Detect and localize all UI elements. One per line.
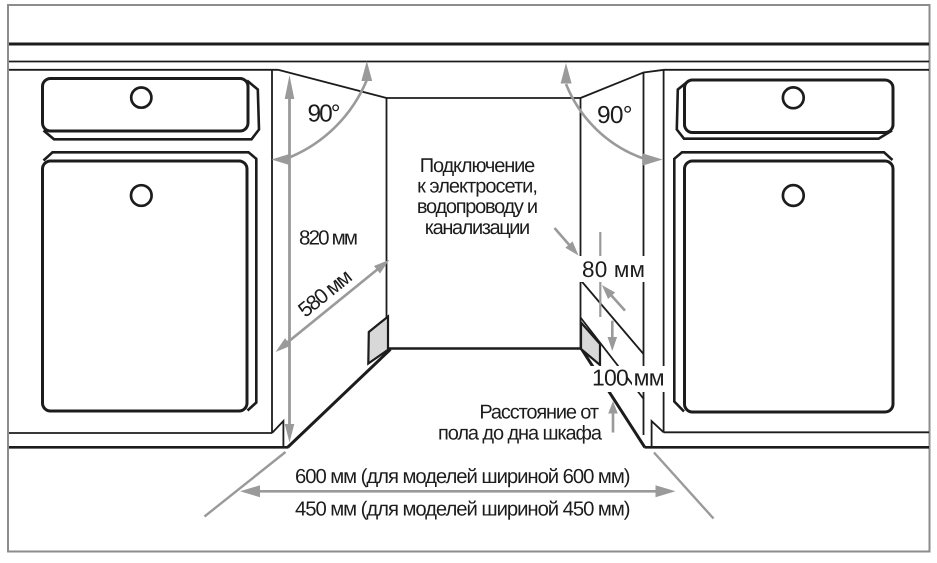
svg-text:820 мм: 820 мм bbox=[299, 227, 358, 250]
svg-text:100 мм: 100 мм bbox=[592, 365, 665, 391]
svg-text:Расстояние от: Расстояние от bbox=[479, 401, 599, 423]
svg-text:канализации: канализации bbox=[425, 217, 530, 239]
svg-text:водопроводу и: водопроводу и bbox=[417, 196, 538, 218]
svg-text:к электросети,: к электросети, bbox=[417, 175, 538, 197]
svg-text:90°: 90° bbox=[308, 101, 341, 128]
svg-text:90°: 90° bbox=[597, 102, 633, 129]
svg-text:600 мм (для моделей шириной 60: 600 мм (для моделей шириной 600 мм) bbox=[295, 466, 631, 488]
svg-text:пола до дна шкафа: пола до дна шкафа bbox=[438, 423, 603, 445]
svg-text:Подключение: Подключение bbox=[420, 155, 536, 177]
svg-text:450 мм (для моделей шириной 45: 450 мм (для моделей шириной 450 мм) bbox=[295, 499, 631, 521]
svg-text:80 мм: 80 мм bbox=[582, 257, 645, 282]
